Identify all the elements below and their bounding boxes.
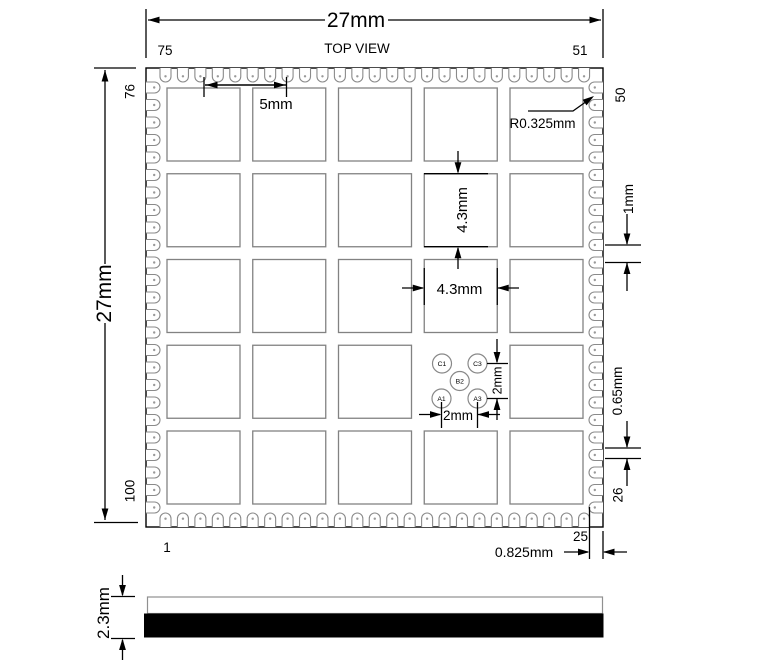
ground-pad: [339, 88, 412, 161]
castellation-right: [589, 327, 603, 338]
castellation-center-mark: [594, 174, 596, 176]
castellation-center-mark: [339, 75, 341, 77]
castellation-center-mark: [153, 331, 155, 333]
castellation-center-mark: [443, 75, 445, 77]
castellation-right: [589, 82, 603, 93]
castellation-bottom: [265, 513, 276, 527]
castellation-center-mark: [269, 75, 271, 77]
castellation-center-mark: [594, 279, 596, 281]
castellation-top: [212, 68, 223, 82]
castellation-center-mark: [594, 191, 596, 193]
castellation-center-mark: [594, 139, 596, 141]
castellation-center-mark: [594, 261, 596, 263]
castellation-center-mark: [594, 244, 596, 246]
castellation-center-mark: [583, 518, 585, 520]
castellation-right: [589, 380, 603, 391]
castellation-center-mark: [321, 518, 323, 520]
ground-pad: [253, 174, 326, 247]
castellation-bottom: [177, 513, 188, 527]
castellation-center-mark: [217, 518, 219, 520]
dim-label-overall-width: 27mm: [327, 9, 385, 32]
castellation-right: [589, 362, 603, 373]
ground-pad: [510, 431, 583, 504]
castellation-right: [589, 257, 603, 268]
castellation-center-mark: [304, 75, 306, 77]
castellation-center-mark: [391, 75, 393, 77]
castellation-bottom: [491, 513, 502, 527]
dim-overall-height: 27mm: [93, 68, 138, 523]
castellation-center-mark: [321, 75, 323, 77]
castellation-center-mark: [182, 75, 184, 77]
castellation-center-mark: [461, 75, 463, 77]
castellation-top: [282, 68, 293, 82]
ground-pad: [510, 260, 583, 333]
ground-pad: [339, 260, 412, 333]
castellation-bottom: [456, 513, 467, 527]
castellation-top: [265, 68, 276, 82]
dim-label-pin-width: 0.65mm: [610, 367, 625, 416]
castellation-center-mark: [164, 75, 166, 77]
castellation-bottom: [509, 513, 520, 527]
castellation-center-mark: [356, 518, 358, 520]
castellation-center-mark: [153, 104, 155, 106]
dim-pin-pitch: 1mm: [605, 184, 641, 291]
view-title: TOP VIEW: [324, 41, 390, 56]
castellation-center-mark: [153, 454, 155, 456]
pin-label-25: 25: [573, 529, 588, 544]
castellation-right: [589, 222, 603, 233]
castellation-right: [589, 135, 603, 146]
ground-pad: [253, 260, 326, 333]
dim-label-pin-pitch: 1mm: [621, 184, 636, 214]
dim-label-pad-width: 4.3mm: [437, 281, 483, 298]
castellation-top: [160, 68, 171, 82]
castellation-center-mark: [426, 75, 428, 77]
ground-pad: [424, 431, 497, 504]
dim-label-corner-offset: 0.825mm: [495, 544, 553, 560]
package-drawing-canvas: C1C3B2A1A3 27mm TOP VIEW 75 51 27mm 76 1…: [0, 0, 763, 668]
castellation-bottom: [300, 513, 311, 527]
castellation-center-mark: [478, 518, 480, 520]
test-pad-label-b2: B2: [456, 378, 465, 385]
castellation-center-mark: [594, 436, 596, 438]
ground-pad: [339, 174, 412, 247]
castellation-center-mark: [153, 401, 155, 403]
castellation-center-mark: [594, 209, 596, 211]
castellation-top: [474, 68, 485, 82]
castellation-bottom: [195, 513, 206, 527]
arrowhead-right: [578, 549, 590, 556]
castellation-center-mark: [164, 518, 166, 520]
castellation-center-mark: [594, 296, 596, 298]
castellation-center-mark: [594, 506, 596, 508]
castellation-bottom: [352, 513, 363, 527]
castellation-top: [561, 68, 572, 82]
castellation-center-mark: [153, 226, 155, 228]
castellation-center-mark: [594, 86, 596, 88]
castellation-center-mark: [594, 489, 596, 491]
castellation-top: [247, 68, 258, 82]
castellation-center-mark: [234, 75, 236, 77]
castellation-bottom: [474, 513, 485, 527]
pin-label-100: 100: [123, 480, 138, 503]
ground-pad: [253, 345, 326, 418]
castellation-center-mark: [153, 506, 155, 508]
castellation-right: [589, 310, 603, 321]
castellation-center-mark: [269, 518, 271, 520]
dim-label-pad-pitch: 5mm: [259, 96, 292, 113]
castellation-right: [589, 152, 603, 163]
castellation-center-mark: [594, 349, 596, 351]
arrowhead-down: [624, 437, 631, 449]
castellation-top: [404, 68, 415, 82]
castellation-center-mark: [391, 518, 393, 520]
test-pad-label-a3: A3: [473, 396, 482, 403]
castellation-center-mark: [594, 331, 596, 333]
arrowhead-up: [102, 70, 109, 82]
castellation-center-mark: [408, 75, 410, 77]
castellation-center-mark: [339, 518, 341, 520]
castellation-right: [589, 100, 603, 111]
castellation-center-mark: [478, 75, 480, 77]
castellation-top: [334, 68, 345, 82]
pin-label-50: 50: [613, 87, 628, 102]
castellation-center-mark: [153, 279, 155, 281]
castellation-bottom: [247, 513, 258, 527]
ground-pad: [510, 174, 583, 247]
castellation-center-mark: [153, 489, 155, 491]
castellation-bottom: [544, 513, 555, 527]
pin-label-26: 26: [611, 487, 626, 502]
castellation-top: [177, 68, 188, 82]
pin-label-75: 75: [157, 43, 172, 58]
castellation-center-mark: [374, 518, 376, 520]
castellation-top: [439, 68, 450, 82]
ground-pad: [510, 345, 583, 418]
side-view: 2.3mm: [94, 575, 604, 660]
castellation-center-mark: [252, 518, 254, 520]
test-pad-label-c3: C3: [473, 361, 482, 368]
pin-label-51: 51: [572, 43, 587, 58]
castellation-right: [589, 397, 603, 408]
castellation-center-mark: [153, 419, 155, 421]
castellation-center-mark: [153, 156, 155, 158]
castellation-center-mark: [356, 75, 358, 77]
castellation-center-mark: [182, 518, 184, 520]
castellation-top: [230, 68, 241, 82]
castellation-bottom: [526, 513, 537, 527]
pin-label-1: 1: [163, 540, 171, 555]
castellation-right: [589, 170, 603, 181]
castellation-bottom: [160, 513, 171, 527]
castellation-top: [509, 68, 520, 82]
castellation-top: [579, 68, 590, 82]
dim-label-castellation-radius: R0.325mm: [509, 116, 575, 131]
castellation-center-mark: [153, 174, 155, 176]
castellation-center-mark: [594, 366, 596, 368]
castellation-center-mark: [496, 75, 498, 77]
castellation-center-mark: [153, 471, 155, 473]
castellation-center-mark: [594, 384, 596, 386]
castellation-bottom: [387, 513, 398, 527]
pin-label-76: 76: [123, 84, 138, 99]
castellation-center-mark: [461, 518, 463, 520]
castellation-center-mark: [153, 349, 155, 351]
test-pad-label-c1: C1: [438, 361, 447, 368]
castellation-center-mark: [565, 518, 567, 520]
castellation-right: [589, 275, 603, 286]
castellation-center-mark: [594, 471, 596, 473]
castellation-center-mark: [594, 104, 596, 106]
castellation-bottom: [369, 513, 380, 527]
castellation-top: [526, 68, 537, 82]
castellation-center-mark: [153, 366, 155, 368]
arrowhead-right: [590, 17, 602, 24]
dim-label-test-pad-pitch-h: 2mm: [443, 408, 473, 423]
castellation-center-mark: [594, 226, 596, 228]
castellation-bottom: [282, 513, 293, 527]
castellation-center-mark: [234, 518, 236, 520]
castellation-center-mark: [153, 86, 155, 88]
dim-label-pad-height: 4.3mm: [454, 187, 471, 233]
pad-grid: C1C3B2A1A3: [167, 88, 583, 504]
castellation-top: [491, 68, 502, 82]
ground-pad: [167, 174, 240, 247]
ground-pad: [339, 345, 412, 418]
castellation-bottom: [212, 513, 223, 527]
castellation-center-mark: [153, 314, 155, 316]
ground-pad: [167, 88, 240, 161]
castellation-top: [387, 68, 398, 82]
ground-pad: [167, 431, 240, 504]
arrowhead-left: [148, 17, 160, 24]
castellation-right: [589, 502, 603, 513]
arrowhead-down: [102, 509, 109, 521]
castellation-center-mark: [594, 121, 596, 123]
castellation-center-mark: [153, 191, 155, 193]
side-view-substrate: [148, 597, 603, 614]
castellation-center-mark: [199, 518, 201, 520]
castellation-right: [589, 345, 603, 356]
castellation-center-mark: [565, 75, 567, 77]
castellation-right: [589, 485, 603, 496]
castellation-center-mark: [153, 296, 155, 298]
castellation-center-mark: [153, 261, 155, 263]
castellation-center-mark: [594, 454, 596, 456]
castellation-bottom: [579, 513, 590, 527]
dim-label-overall-height: 27mm: [93, 264, 116, 322]
ground-pad: [167, 345, 240, 418]
castellation-center-mark: [496, 518, 498, 520]
castellation-bottom: [404, 513, 415, 527]
test-pad-label-a1: A1: [437, 396, 446, 403]
castellation-center-mark: [153, 244, 155, 246]
castellation-bottom: [439, 513, 450, 527]
castellation-center-mark: [513, 518, 515, 520]
castellation-center-mark: [153, 384, 155, 386]
castellation-right: [589, 240, 603, 251]
castellation-center-mark: [594, 419, 596, 421]
castellation-right: [589, 467, 603, 478]
castellation-right: [589, 117, 603, 128]
castellation-center-mark: [548, 75, 550, 77]
castellation-center-mark: [153, 436, 155, 438]
arrowhead-up: [624, 263, 631, 275]
castellation-top: [369, 68, 380, 82]
castellation-top: [544, 68, 555, 82]
castellation-center-mark: [153, 209, 155, 211]
castellation-center-mark: [548, 518, 550, 520]
castellation-center-mark: [374, 75, 376, 77]
castellation-center-mark: [153, 139, 155, 141]
castellation-bottom: [422, 513, 433, 527]
ground-pad: [253, 431, 326, 504]
arrowhead-left: [603, 549, 615, 556]
castellation-center-mark: [286, 518, 288, 520]
castellation-center-mark: [583, 75, 585, 77]
castellation-bottom: [230, 513, 241, 527]
arrowhead-up: [119, 639, 126, 651]
castellation-top: [317, 68, 328, 82]
castellation-bottom: [317, 513, 328, 527]
castellation-top: [352, 68, 363, 82]
castellation-right: [589, 187, 603, 198]
arrowhead-down: [119, 585, 126, 597]
castellation-top: [456, 68, 467, 82]
side-view-body: [144, 614, 604, 638]
castellation-center-mark: [531, 518, 533, 520]
castellation-center-mark: [426, 518, 428, 520]
ground-pad: [339, 431, 412, 504]
castellation-center-mark: [304, 518, 306, 520]
dim-label-thickness: 2.3mm: [94, 587, 113, 639]
castellation-top: [422, 68, 433, 82]
arrowhead-up: [624, 459, 631, 471]
castellation-center-mark: [252, 75, 254, 77]
castellation-right: [589, 205, 603, 216]
castellation-top: [300, 68, 311, 82]
castellation-center-mark: [443, 518, 445, 520]
castellation-center-mark: [217, 75, 219, 77]
castellation-right: [589, 415, 603, 426]
castellation-center-mark: [531, 75, 533, 77]
arrowhead-down: [624, 234, 631, 246]
ground-pad: [167, 260, 240, 333]
castellation-right: [589, 450, 603, 461]
castellation-center-mark: [408, 518, 410, 520]
castellation-center-mark: [153, 121, 155, 123]
dim-pin-width: 0.65mm: [605, 367, 641, 486]
castellation-bottom: [334, 513, 345, 527]
castellation-center-mark: [594, 156, 596, 158]
castellation-bottom: [561, 513, 572, 527]
castellation-center-mark: [594, 401, 596, 403]
castellation-right: [589, 292, 603, 303]
castellation-center-mark: [199, 75, 201, 77]
castellation-center-mark: [594, 314, 596, 316]
ground-pad: [424, 88, 497, 161]
mechanical-drawing: C1C3B2A1A3 27mm TOP VIEW 75 51 27mm 76 1…: [0, 0, 763, 668]
castellation-right: [589, 432, 603, 443]
castellation-center-mark: [513, 75, 515, 77]
dim-label-test-pad-pitch-v: 2mm: [491, 367, 505, 395]
